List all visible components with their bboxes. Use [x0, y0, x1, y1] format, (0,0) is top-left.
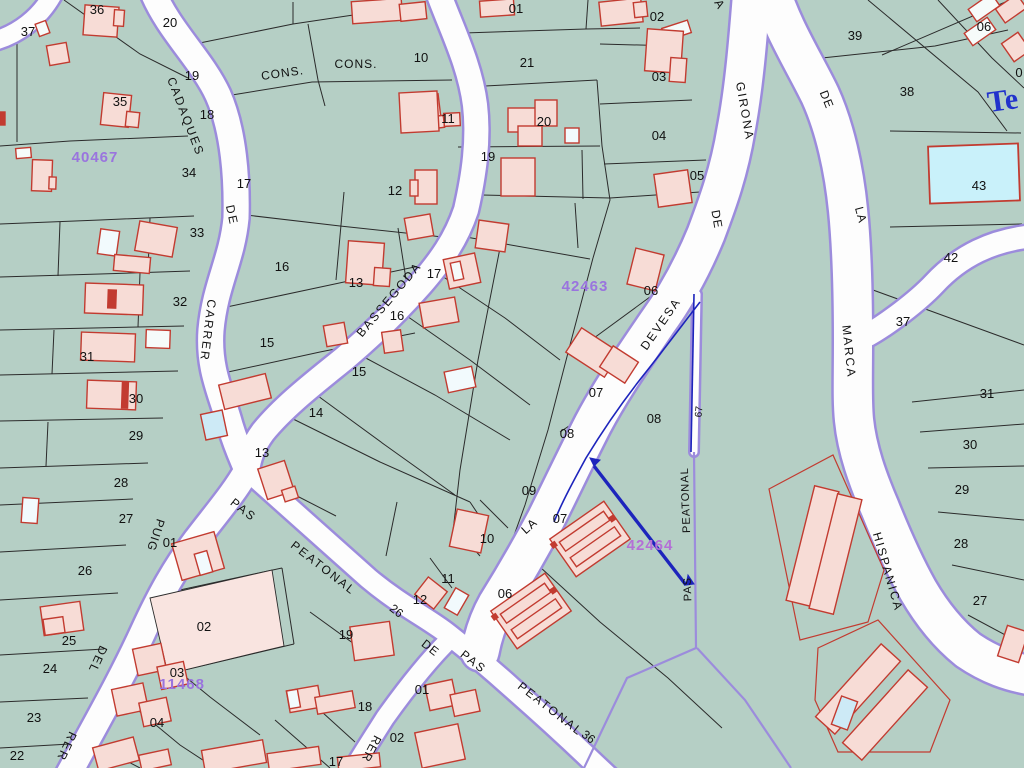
svg-text:07: 07: [589, 385, 603, 400]
svg-text:37: 37: [21, 24, 35, 39]
svg-text:16: 16: [275, 259, 289, 274]
svg-text:33: 33: [190, 225, 204, 240]
svg-text:28: 28: [954, 536, 968, 551]
svg-text:23: 23: [27, 710, 41, 725]
svg-text:10: 10: [480, 531, 494, 546]
svg-text:06: 06: [644, 283, 658, 298]
svg-text:17: 17: [427, 266, 441, 281]
svg-text:20: 20: [163, 15, 177, 30]
svg-text:11: 11: [441, 111, 455, 126]
svg-text:PAS: PAS: [682, 577, 695, 602]
svg-text:05: 05: [690, 168, 704, 183]
svg-text:31: 31: [80, 349, 94, 364]
svg-text:39: 39: [848, 28, 862, 43]
svg-text:37: 37: [896, 314, 910, 329]
svg-text:08: 08: [560, 426, 574, 441]
svg-text:30: 30: [129, 391, 143, 406]
svg-text:10: 10: [414, 50, 428, 65]
svg-text:16: 16: [390, 308, 404, 323]
svg-text:42464: 42464: [627, 537, 674, 554]
svg-text:04: 04: [150, 715, 164, 730]
svg-text:02: 02: [197, 619, 211, 634]
svg-text:29: 29: [129, 428, 143, 443]
svg-text:06: 06: [498, 586, 512, 601]
svg-text:01: 01: [509, 1, 523, 16]
svg-text:17: 17: [329, 754, 343, 768]
svg-text:28: 28: [114, 475, 128, 490]
svg-text:15: 15: [352, 364, 366, 379]
svg-text:67: 67: [694, 405, 706, 417]
svg-text:29: 29: [955, 482, 969, 497]
svg-text:17: 17: [237, 176, 251, 191]
svg-text:PEATONAL: PEATONAL: [679, 467, 693, 533]
svg-text:18: 18: [200, 107, 214, 122]
svg-text:14: 14: [309, 405, 323, 420]
svg-text:19: 19: [339, 627, 353, 642]
svg-text:15: 15: [260, 335, 274, 350]
svg-text:13: 13: [349, 275, 363, 290]
svg-text:12: 12: [413, 592, 427, 607]
svg-text:06: 06: [977, 19, 991, 34]
svg-text:36: 36: [90, 2, 104, 17]
svg-text:24: 24: [43, 661, 57, 676]
svg-text:42463: 42463: [562, 278, 609, 295]
svg-text:20: 20: [537, 114, 551, 129]
svg-text:27: 27: [119, 511, 133, 526]
svg-text:35: 35: [113, 94, 127, 109]
svg-text:09: 09: [522, 483, 536, 498]
svg-text:11: 11: [441, 571, 455, 586]
svg-text:07: 07: [553, 511, 567, 526]
svg-text:25: 25: [62, 633, 76, 648]
svg-text:40467: 40467: [72, 149, 119, 166]
svg-text:03: 03: [652, 69, 666, 84]
svg-text:01: 01: [163, 535, 177, 550]
svg-text:04: 04: [652, 128, 666, 143]
svg-text:02: 02: [390, 730, 404, 745]
svg-text:12: 12: [388, 183, 402, 198]
svg-text:08: 08: [647, 411, 661, 426]
svg-text:27: 27: [973, 593, 987, 608]
svg-text:31: 31: [980, 386, 994, 401]
svg-text:22: 22: [10, 748, 24, 763]
svg-text:32: 32: [173, 294, 187, 309]
svg-text:19: 19: [185, 68, 199, 83]
svg-text:Te: Te: [985, 82, 1020, 119]
svg-text:0: 0: [1015, 65, 1022, 80]
svg-text:30: 30: [963, 437, 977, 452]
svg-text:02: 02: [650, 9, 664, 24]
svg-text:18: 18: [358, 699, 372, 714]
svg-text:21: 21: [520, 55, 534, 70]
svg-text:01: 01: [415, 682, 429, 697]
svg-text:42: 42: [944, 250, 958, 265]
svg-text:38: 38: [900, 84, 914, 99]
svg-text:CONS.: CONS.: [334, 57, 377, 71]
svg-text:13: 13: [255, 445, 269, 460]
svg-text:26: 26: [78, 563, 92, 578]
svg-text:19: 19: [481, 149, 495, 164]
svg-text:43: 43: [972, 178, 986, 193]
svg-text:11468: 11468: [159, 676, 205, 693]
svg-text:34: 34: [182, 165, 196, 180]
